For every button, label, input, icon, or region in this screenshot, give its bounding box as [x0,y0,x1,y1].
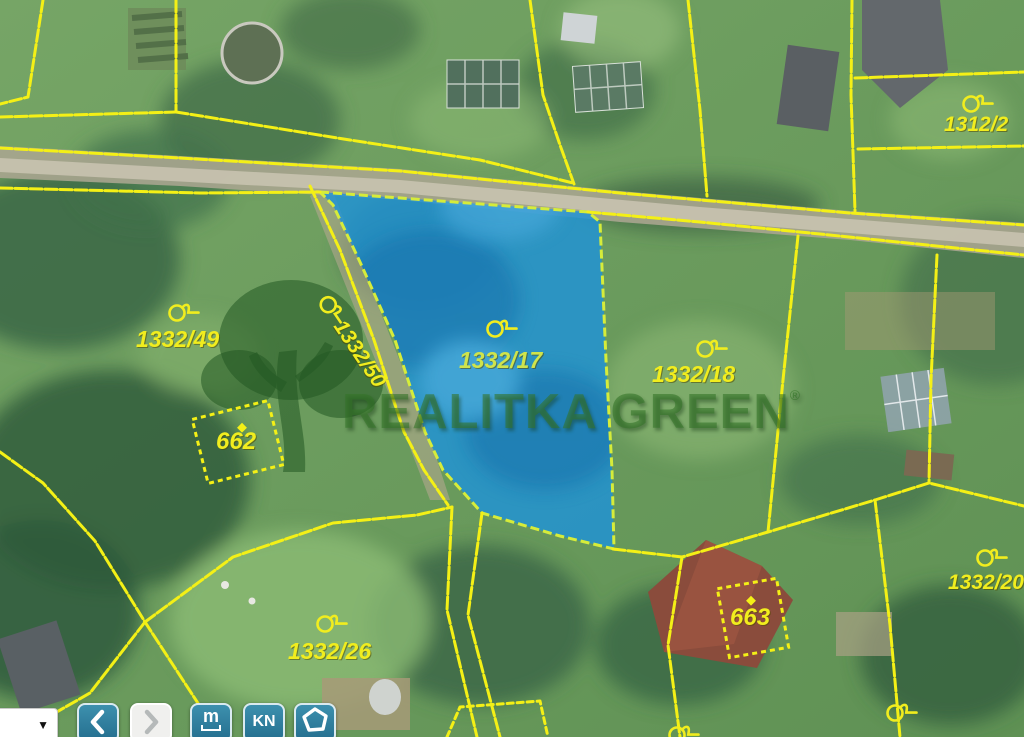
map-scale-select[interactable]: ▼ [0,708,58,737]
kn-label: KN [252,713,275,731]
parcel-polygon-button[interactable] [294,703,336,737]
ground-dot [249,598,256,605]
garden-beds-right [836,612,892,656]
dome-structure [369,679,401,715]
ground-dot [221,581,229,589]
history-back-button[interactable] [77,703,119,737]
shed-top [561,12,598,43]
cadastre-kn-button[interactable]: KN [243,703,285,737]
round-pool [222,23,282,83]
allotment-beds-right [845,292,995,350]
aerial-terrain [0,0,1024,737]
house-topright-1 [777,45,840,131]
measure-icon: m [201,708,221,731]
chevron-left-icon [85,705,111,737]
map-viewer: REALITKA GREEN® 1332/49 1332/50 1332/17 … [0,0,1024,737]
measure-tool-button[interactable]: m [190,703,232,737]
chevron-down-icon: ▼ [37,718,49,732]
measure-label: m [203,708,219,725]
greenhouse-top-2 [572,62,643,113]
cadastral-map-canvas[interactable] [0,0,1024,737]
glasshouse-right [880,368,951,432]
pentagon-icon [301,705,329,737]
garden-rows-topleft [128,8,188,70]
chevron-right-icon [138,705,164,737]
history-forward-button[interactable] [130,703,172,737]
greenhouse-top-1 [447,60,519,108]
